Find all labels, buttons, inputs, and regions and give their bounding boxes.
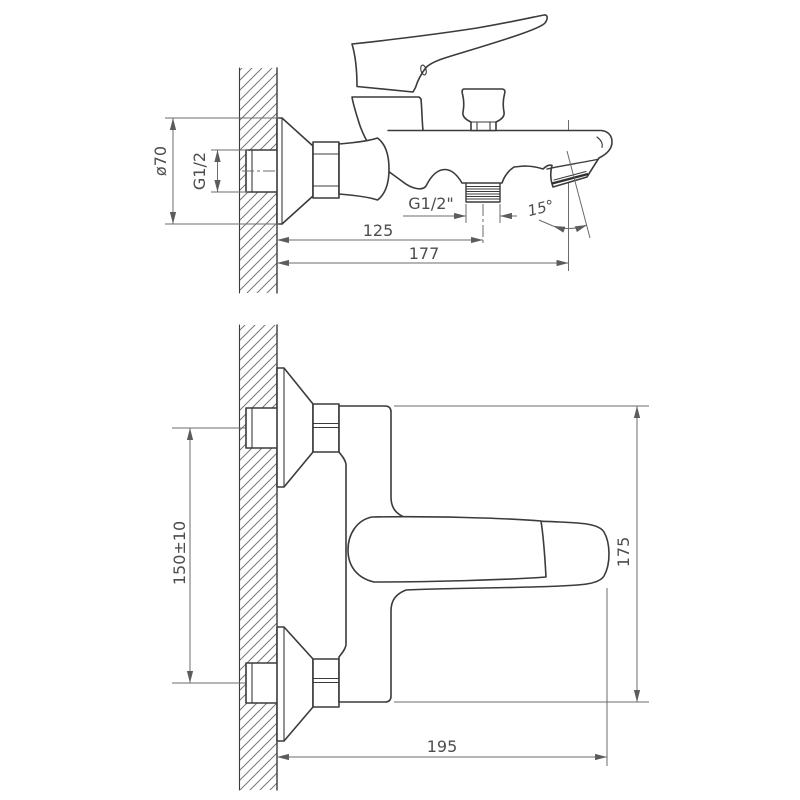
dim-label-outlet-thread: G1/2": [408, 194, 454, 213]
faucet-technical-drawing: ø70 G1/2 G1/2" 125 177 15°: [0, 0, 800, 800]
front-view: 150±10 175 195: [170, 325, 649, 790]
drawing-canvas: ø70 G1/2 G1/2" 125 177 15°: [0, 0, 800, 800]
dim-label-15deg: 15°: [526, 196, 556, 220]
angle-arc: [553, 225, 587, 229]
wall-hatch: [240, 325, 278, 790]
side-view: ø70 G1/2 G1/2" 125 177 15°: [151, 15, 612, 293]
union-nut: [313, 142, 339, 198]
eccentric-flange: [277, 627, 313, 741]
dim-label-flange-dia: ø70: [151, 146, 170, 176]
wall-section: [240, 325, 278, 790]
dim-label-177: 177: [409, 244, 440, 263]
cover-bell: [339, 138, 389, 200]
lever-handle-top: [348, 517, 546, 582]
pipe-stub: [246, 408, 279, 448]
dim-label-125: 125: [363, 221, 394, 240]
diverter-knob: [462, 89, 505, 131]
eccentric-flange: [277, 368, 313, 487]
wall-mount-fitting: [277, 118, 339, 224]
dim-label-wall-thread: G1/2: [190, 152, 209, 190]
dim-label-195: 195: [427, 737, 458, 756]
dim-label-150: 150±10: [170, 521, 189, 585]
shower-outlet-thread: [466, 184, 500, 202]
angle-arc-tail: [539, 220, 553, 226]
dim-label-175: 175: [614, 537, 633, 568]
pipe-stub: [246, 663, 279, 703]
lever-handle: [352, 15, 547, 92]
